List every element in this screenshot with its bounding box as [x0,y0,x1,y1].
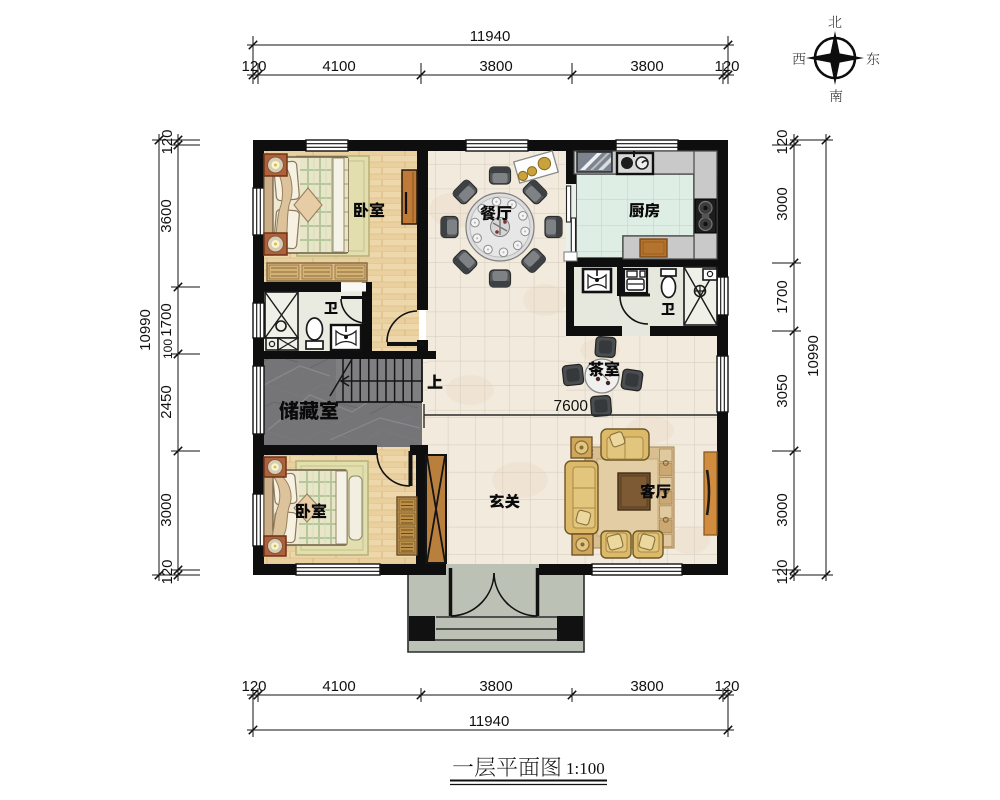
svg-text:120: 120 [714,678,739,695]
svg-text:3800: 3800 [630,678,663,695]
svg-text:3000: 3000 [774,187,791,220]
svg-text:3600: 3600 [158,199,175,232]
svg-text:11940: 11940 [469,713,510,730]
svg-text:3000: 3000 [158,493,175,526]
svg-text:120: 120 [774,559,791,584]
svg-text:3800: 3800 [479,58,512,75]
svg-text:1700: 1700 [158,303,175,336]
svg-text:1700: 1700 [774,280,791,313]
svg-text:4100: 4100 [322,58,355,75]
svg-text:120: 120 [774,129,791,154]
svg-text:3000: 3000 [774,493,791,526]
svg-text:120: 120 [241,678,266,695]
svg-text:11940: 11940 [470,28,511,45]
svg-text:3800: 3800 [630,58,663,75]
svg-text:7600: 7600 [554,398,589,415]
svg-text:2450: 2450 [158,385,175,418]
svg-text:10990: 10990 [805,335,822,377]
svg-text:120: 120 [159,129,176,154]
svg-text:10990: 10990 [137,309,154,351]
svg-text:120: 120 [159,559,176,584]
svg-text:4100: 4100 [322,678,355,695]
svg-text:3800: 3800 [479,678,512,695]
svg-text:120: 120 [714,58,739,75]
svg-text:3050: 3050 [774,374,791,407]
svg-text:120: 120 [241,58,266,75]
svg-text:100: 100 [161,339,175,359]
svg-text:1:100: 1:100 [566,759,605,778]
